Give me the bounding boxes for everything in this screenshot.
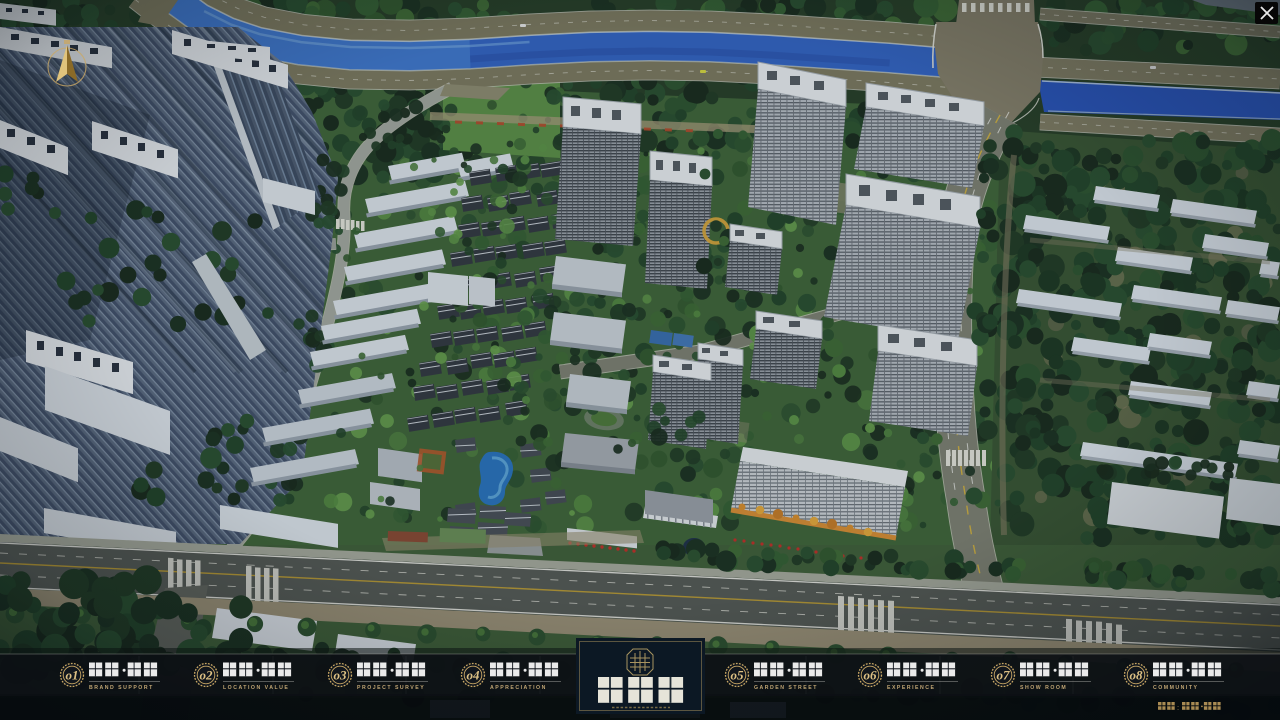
svg-text:o6: o6 bbox=[864, 668, 878, 683]
svg-text:COMMUNITY: COMMUNITY bbox=[1153, 685, 1199, 691]
svg-text:o2: o2 bbox=[200, 668, 214, 683]
svg-text:GARDEN STREET: GARDEN STREET bbox=[754, 685, 818, 691]
svg-text:APPRECIATION: APPRECIATION bbox=[490, 685, 547, 691]
svg-text:SHOW ROOM: SHOW ROOM bbox=[1020, 685, 1067, 691]
svg-text:o8: o8 bbox=[1130, 668, 1144, 683]
svg-text:EXPERIENCE: EXPERIENCE bbox=[887, 685, 935, 691]
svg-text:o3: o3 bbox=[334, 668, 348, 683]
svg-text:o4: o4 bbox=[467, 668, 481, 683]
svg-text:PROJECT SURVEY: PROJECT SURVEY bbox=[357, 685, 425, 691]
svg-text:o7: o7 bbox=[997, 668, 1011, 683]
svg-text:o5: o5 bbox=[731, 668, 745, 683]
svg-text:o1: o1 bbox=[66, 668, 79, 683]
svg-text:BRAND SUPPORT: BRAND SUPPORT bbox=[89, 685, 154, 691]
svg-text:LOCATION VALUE: LOCATION VALUE bbox=[223, 685, 289, 691]
svg-text::: : bbox=[1177, 703, 1179, 712]
